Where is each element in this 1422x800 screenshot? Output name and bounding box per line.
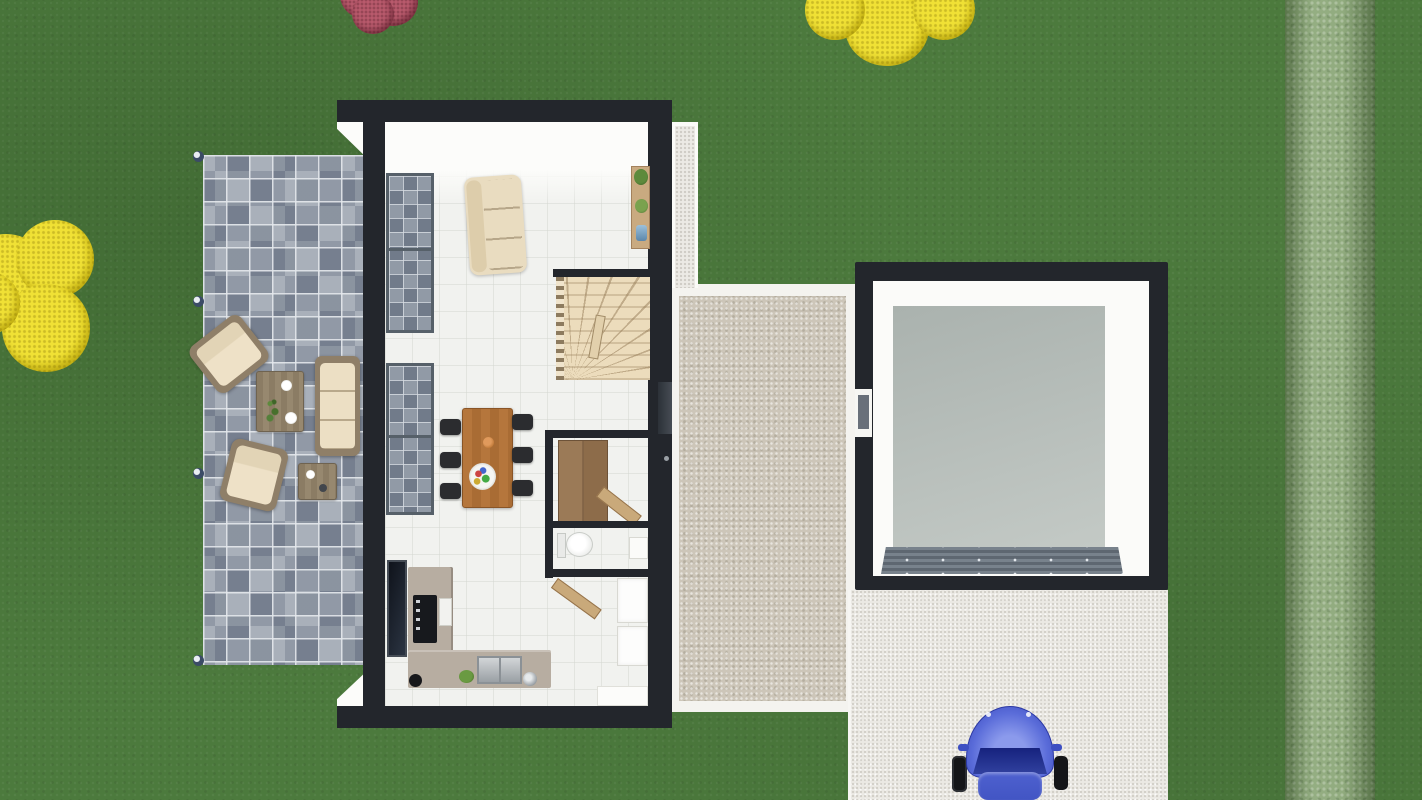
plate	[281, 380, 292, 391]
oven[interactable]	[413, 595, 437, 643]
closet-wall	[545, 430, 648, 438]
wc-cabinet[interactable]	[629, 537, 648, 559]
outdoor-coffee-table[interactable]	[256, 371, 304, 432]
outdoor-side-table[interactable]	[298, 463, 337, 500]
sofa-cushions	[482, 178, 524, 270]
house-wall-top	[337, 100, 672, 122]
car-wheel	[952, 756, 967, 792]
house-wall-left	[363, 122, 385, 706]
courtyard-cobblestones	[679, 296, 846, 701]
car-headlight	[986, 712, 991, 717]
wc-wall	[553, 521, 648, 528]
pantry-cabinet[interactable]	[617, 578, 648, 623]
yellow-tree[interactable]	[805, 0, 985, 96]
door-knob	[664, 456, 669, 461]
toilet-tank	[557, 533, 566, 558]
stair-wall	[553, 269, 650, 277]
wall-shelf[interactable]	[631, 166, 650, 249]
living-room-sofa[interactable]	[464, 174, 528, 276]
garden-hedge	[1285, 0, 1375, 800]
kitchen-sink[interactable]	[477, 656, 522, 684]
car-mirror	[958, 744, 969, 751]
plate	[306, 470, 315, 479]
window-mullion	[389, 248, 431, 251]
car-mirror	[1051, 744, 1062, 751]
outdoor-sofa[interactable]	[315, 356, 360, 456]
car-roof	[978, 772, 1042, 800]
stair-newel	[588, 314, 605, 359]
dining-chair[interactable]	[440, 419, 461, 435]
vase	[636, 225, 647, 241]
terrace-light[interactable]	[193, 655, 204, 666]
sink-divider	[499, 658, 501, 682]
appliance-panel	[439, 598, 452, 626]
potted-plant	[635, 199, 648, 213]
toilet[interactable]	[566, 532, 593, 557]
potted-plant	[262, 394, 282, 426]
terrace-light[interactable]	[193, 296, 204, 307]
living-room-window[interactable]	[386, 363, 434, 515]
window-mullion	[389, 435, 431, 438]
car-headlight	[1026, 712, 1031, 717]
red-bush[interactable]	[338, 0, 426, 40]
car[interactable]	[952, 706, 1068, 800]
plate	[285, 412, 297, 424]
oven-knobs	[416, 600, 420, 636]
garage-side-window[interactable]	[855, 389, 872, 437]
garage-floor	[893, 306, 1105, 556]
dining-chair[interactable]	[440, 452, 461, 468]
closet-wall	[545, 430, 553, 578]
car-wheel	[1054, 756, 1068, 790]
chair-cushion	[225, 444, 282, 506]
foliage-clump	[352, 0, 394, 34]
side-path	[672, 122, 698, 288]
dining-chair[interactable]	[512, 414, 533, 430]
cup	[319, 484, 327, 492]
pantry-cabinet[interactable]	[617, 626, 648, 666]
potted-plant	[634, 169, 648, 185]
dining-table[interactable]	[462, 408, 513, 508]
wardrobe[interactable]	[558, 440, 608, 523]
living-room-window[interactable]	[386, 173, 434, 333]
yellow-bush[interactable]	[0, 212, 120, 380]
sofa-cushions	[320, 363, 355, 449]
terrace-light[interactable]	[193, 468, 204, 479]
kitchen-canister	[409, 674, 422, 687]
dining-chair[interactable]	[440, 483, 461, 499]
garage-door[interactable]	[881, 547, 1123, 574]
pantry-wall	[553, 569, 648, 577]
fruit-plate	[469, 463, 496, 490]
floorplan-render	[0, 0, 1422, 800]
window-glass	[858, 395, 869, 429]
car-windshield	[973, 748, 1047, 774]
bowl	[483, 437, 494, 448]
dining-chair[interactable]	[512, 447, 533, 463]
side-entrance-door[interactable]	[658, 382, 672, 434]
stair-railing	[556, 277, 564, 380]
house-wall-bottom	[337, 706, 672, 728]
dining-chair[interactable]	[512, 480, 533, 496]
kitchen-window[interactable]	[387, 560, 407, 657]
staircase[interactable]	[556, 277, 650, 380]
kettle	[523, 672, 537, 686]
pantry-counter	[597, 686, 648, 706]
kitchen-plant	[459, 670, 474, 683]
terrace-light[interactable]	[193, 151, 204, 162]
